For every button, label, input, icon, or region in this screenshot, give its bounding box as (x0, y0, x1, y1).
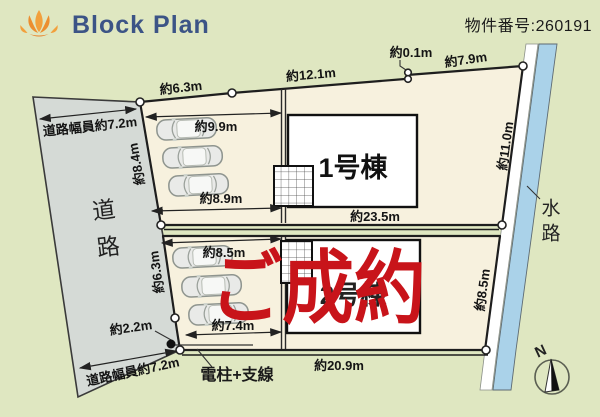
building-1-label: 1号棟 (318, 153, 388, 183)
north-label: N (532, 342, 549, 362)
pole-label: 電柱+支線 (200, 365, 273, 384)
dim-lot1-back: 約8.9m (200, 191, 243, 206)
site-plan-svg: 約6.3m 約12.1m 約0.1m 約7.9m 約8.4m 約6.3m 約2.… (0, 0, 600, 417)
dim-top-mid: 約12.1m (285, 65, 336, 84)
utility-pole-dot (167, 340, 176, 349)
header: Block Plan 物件番号:260191 (0, 0, 600, 58)
dim-top-left: 約6.3m (159, 78, 203, 97)
north-needle-dark-half (551, 359, 559, 391)
compass: N (532, 342, 569, 394)
block-plan-page: 約6.3m 約12.1m 約0.1m 約7.9m 約8.4m 約6.3m 約2.… (0, 0, 600, 417)
sold-stamp: ご成約 (211, 244, 426, 333)
waterway-label: 水路 (539, 198, 561, 248)
brand-title: Block Plan (72, 11, 210, 40)
property-number: 物件番号:260191 (465, 12, 592, 36)
dim-lot1-front: 約9.9m (195, 119, 238, 134)
dim-lot1-depth: 約23.5m (350, 209, 400, 224)
lotus-logo-icon (16, 6, 62, 44)
dim-lot2-depth: 約20.9m (314, 358, 364, 373)
brand: Block Plan (16, 6, 210, 44)
car-icon (162, 143, 223, 170)
building-1-terrace-grid (274, 166, 313, 206)
